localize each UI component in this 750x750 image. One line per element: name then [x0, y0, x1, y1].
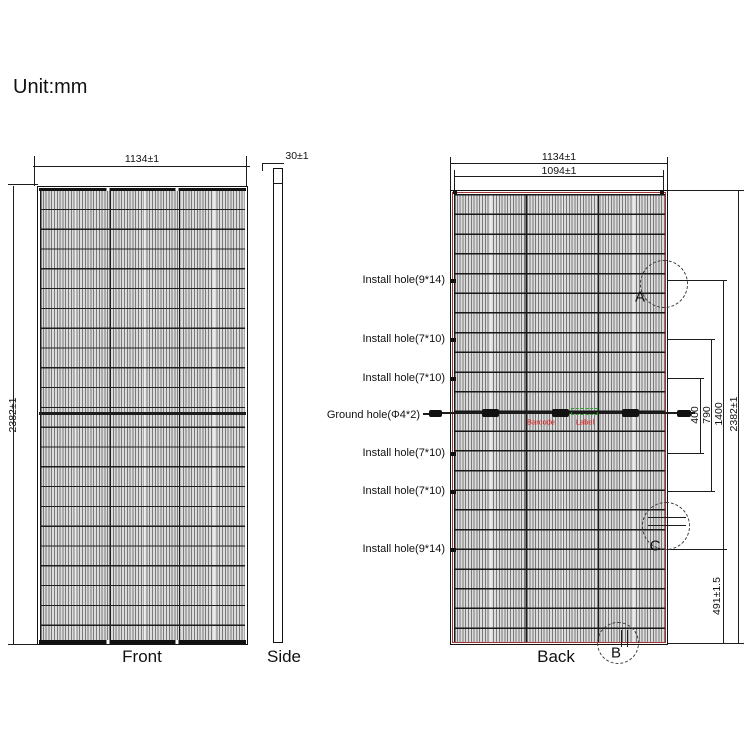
extension-line	[668, 549, 727, 550]
unit-label: Unit:mm	[13, 76, 87, 99]
technical-drawing: Unit:mm 1134±1 2382±1 Front 30±1 Side	[0, 0, 750, 750]
side-frame-edge-line	[274, 183, 282, 184]
drain-detail-line	[627, 630, 628, 647]
dimension-line	[13, 186, 14, 645]
side-caption: Side	[267, 647, 301, 667]
dimension-line	[262, 163, 284, 164]
extension-line	[663, 170, 664, 190]
ground-lug	[429, 410, 442, 417]
hole-label: Install hole(9*14)	[362, 543, 445, 555]
pitch-outer-dim: 1400	[713, 402, 725, 425]
install-hole-tick	[451, 548, 456, 552]
back-cell-grid	[454, 194, 665, 642]
front-caption: Front	[122, 647, 162, 667]
extension-line	[667, 157, 668, 190]
front-bottom-frame-bar	[39, 640, 246, 644]
bottom-offset-dim: 491±1.5	[711, 577, 723, 615]
side-panel	[273, 168, 283, 643]
extension-line	[668, 339, 715, 340]
hole-label: Install hole(7*10)	[362, 372, 445, 384]
side-thickness-dim: 30±1	[285, 150, 308, 162]
extension-line	[454, 170, 455, 190]
frame-hole-tick	[453, 191, 457, 194]
extension-line	[8, 184, 38, 185]
extension-line	[668, 643, 744, 644]
hole-label: Install hole(7*10)	[362, 485, 445, 497]
hole-label: Install hole(7*10)	[362, 447, 445, 459]
label-text: Label	[576, 418, 594, 427]
detail-letter-a: A	[635, 289, 645, 306]
back-width-dim: 1134±1	[542, 151, 576, 163]
install-hole-tick	[451, 338, 456, 342]
junction-box	[482, 409, 499, 417]
pitch-inner-dim: 400	[689, 406, 701, 424]
extension-line	[668, 491, 715, 492]
detail-letter-c: C	[650, 538, 661, 555]
dimension-line	[33, 166, 250, 167]
front-panel	[37, 186, 248, 645]
vent-detail-line	[648, 525, 686, 526]
dimension-line	[454, 176, 664, 177]
extension-line	[8, 644, 38, 645]
barcode-text: Barcode	[527, 418, 555, 427]
extension-line	[450, 157, 451, 190]
detail-circle-a	[640, 260, 688, 308]
extension-line	[668, 190, 744, 191]
front-middle-divider	[39, 412, 246, 415]
install-hole-tick	[451, 279, 456, 283]
extension-line	[262, 163, 263, 171]
extension-line	[34, 156, 35, 186]
back-panel	[450, 190, 668, 645]
extension-line	[246, 156, 247, 186]
install-hole-tick	[451, 452, 456, 456]
extension-line	[668, 378, 704, 379]
front-top-frame-bar	[39, 188, 246, 192]
back-height-dim: 2382±1	[728, 397, 740, 432]
dimension-line	[723, 549, 724, 644]
label-outline-green	[571, 408, 598, 415]
junction-box	[552, 409, 569, 417]
dimension-line	[450, 163, 668, 164]
drain-detail-line	[621, 630, 622, 647]
pitch-mid-dim: 790	[701, 406, 713, 424]
hole-label: Install hole(9*14)	[362, 274, 445, 286]
frame-hole-tick	[660, 191, 664, 194]
install-hole-tick	[451, 377, 456, 381]
back-caption: Back	[537, 647, 575, 667]
ground-hole-label: Ground hole(Φ4*2)	[327, 409, 420, 421]
hole-label: Install hole(7*10)	[362, 333, 445, 345]
install-hole-tick	[451, 490, 456, 494]
front-width-dim: 1134±1	[125, 153, 159, 165]
front-cell-grid	[40, 189, 245, 642]
extension-line	[668, 453, 704, 454]
vent-detail-line	[648, 517, 686, 518]
detail-letter-b: B	[611, 645, 621, 662]
junction-box	[622, 409, 639, 417]
